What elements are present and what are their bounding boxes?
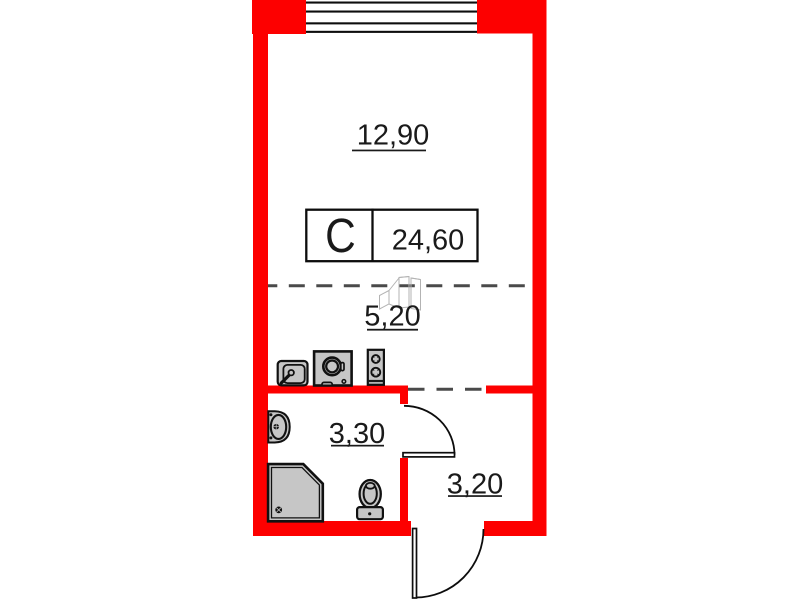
svg-text:C: C (325, 208, 356, 262)
svg-text:5,20: 5,20 (364, 301, 420, 333)
svg-text:12,90: 12,90 (357, 120, 430, 152)
svg-text:24,60: 24,60 (392, 225, 465, 257)
